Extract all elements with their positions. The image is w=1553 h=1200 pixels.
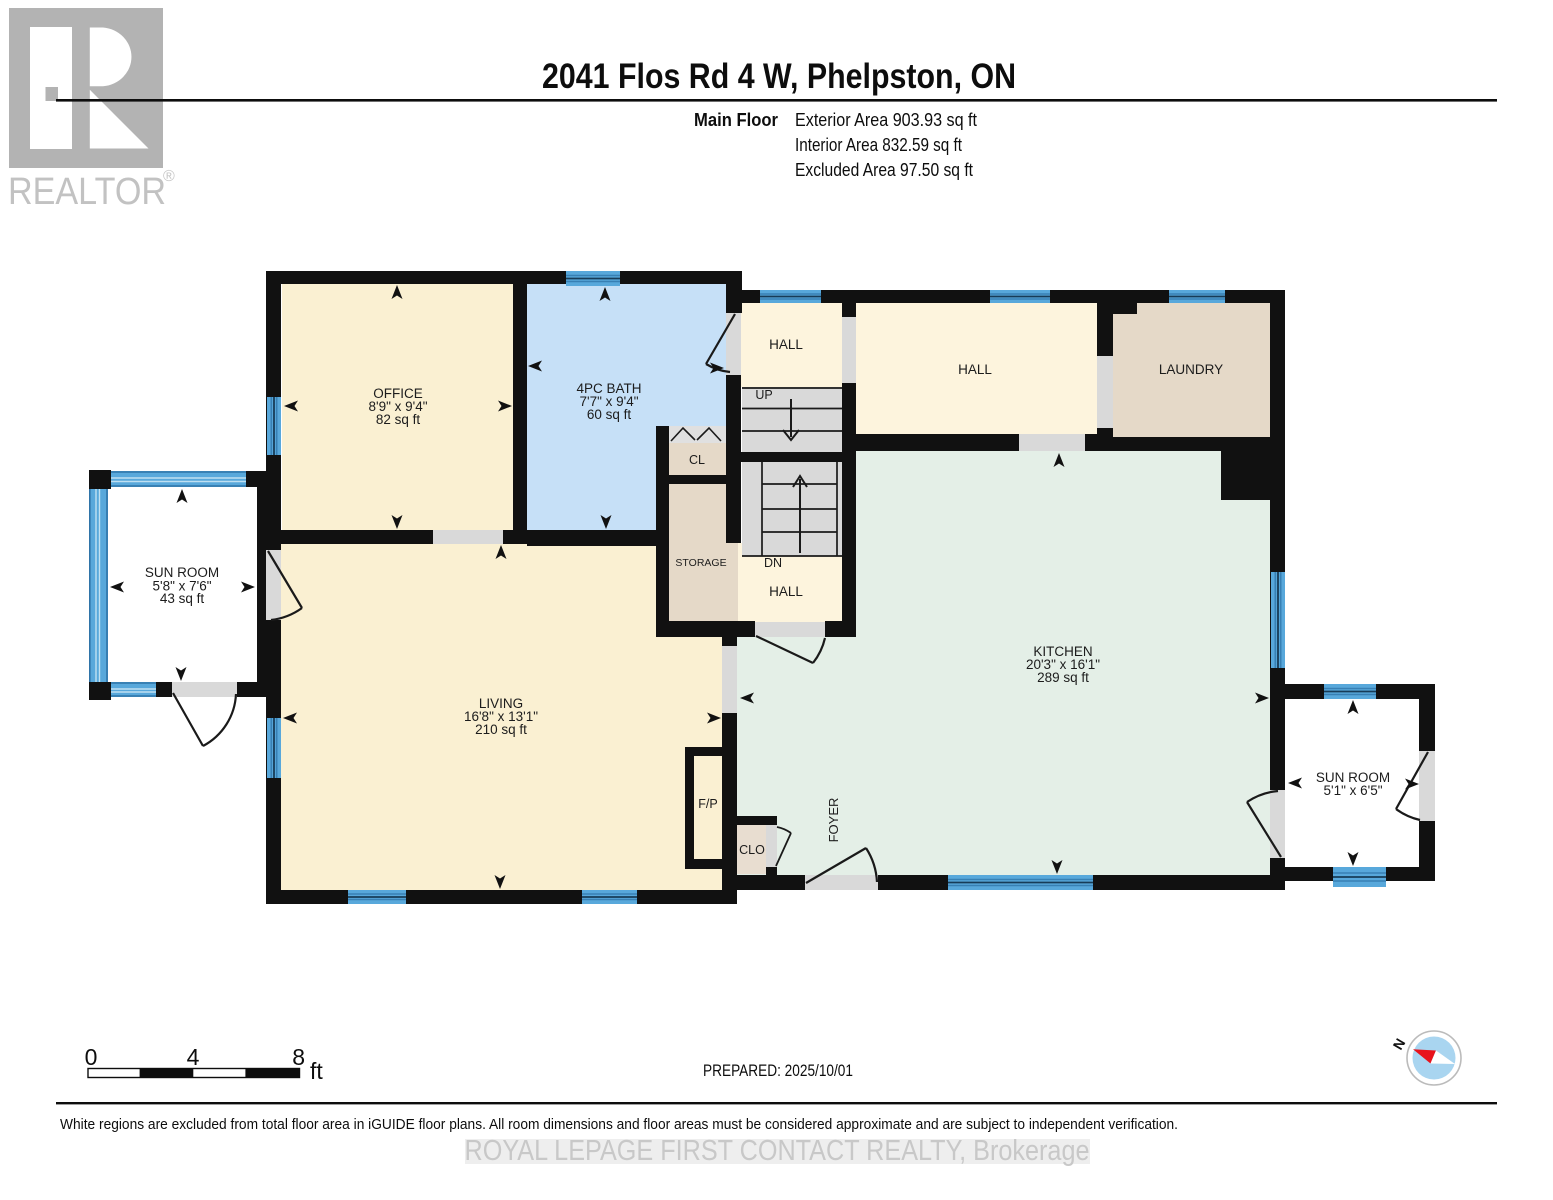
svg-text:®: ® <box>163 168 175 185</box>
svg-text:210 sq ft: 210 sq ft <box>475 722 527 737</box>
svg-text:4: 4 <box>187 1044 200 1070</box>
svg-text:CL: CL <box>689 453 705 467</box>
svg-text:8: 8 <box>292 1044 305 1070</box>
svg-text:CLO: CLO <box>739 843 765 857</box>
svg-text:2041 Flos Rd 4 W, Phelpston, O: 2041 Flos Rd 4 W, Phelpston, ON <box>542 57 1016 96</box>
svg-text:43 sq ft: 43 sq ft <box>160 591 205 606</box>
svg-text:FOYER: FOYER <box>826 798 841 843</box>
svg-text:HALL: HALL <box>769 337 803 352</box>
svg-text:Main Floor: Main Floor <box>694 110 778 130</box>
svg-text:5'1" x 6'5": 5'1" x 6'5" <box>1323 783 1382 798</box>
svg-text:60 sq ft: 60 sq ft <box>587 407 632 422</box>
svg-text:REALTOR: REALTOR <box>8 171 166 213</box>
svg-text:HALL: HALL <box>958 362 992 377</box>
svg-text:Exterior Area 903.93 sq ft: Exterior Area 903.93 sq ft <box>795 110 977 130</box>
svg-text:F/P: F/P <box>698 797 717 811</box>
svg-text:Interior Area 832.59 sq ft: Interior Area 832.59 sq ft <box>795 135 962 155</box>
svg-text:HALL: HALL <box>769 584 803 599</box>
svg-text:PREPARED: 2025/10/01: PREPARED: 2025/10/01 <box>703 1061 853 1080</box>
svg-text:UP: UP <box>755 388 772 402</box>
svg-text:289 sq ft: 289 sq ft <box>1037 670 1089 685</box>
svg-text:LAUNDRY: LAUNDRY <box>1159 362 1223 377</box>
svg-text:DN: DN <box>764 556 782 570</box>
svg-text:ft: ft <box>310 1058 323 1084</box>
svg-text:82 sq ft: 82 sq ft <box>376 412 421 427</box>
svg-text:ROYAL LEPAGE FIRST CONTACT REA: ROYAL LEPAGE FIRST CONTACT REALTY, Broke… <box>465 1135 1090 1167</box>
svg-text:Excluded Area 97.50 sq ft: Excluded Area 97.50 sq ft <box>795 160 973 180</box>
svg-text:White regions are excluded fro: White regions are excluded from total fl… <box>60 1116 1178 1133</box>
svg-text:0: 0 <box>85 1044 98 1070</box>
svg-text:STORAGE: STORAGE <box>675 557 726 569</box>
svg-text:N: N <box>1390 1036 1409 1053</box>
